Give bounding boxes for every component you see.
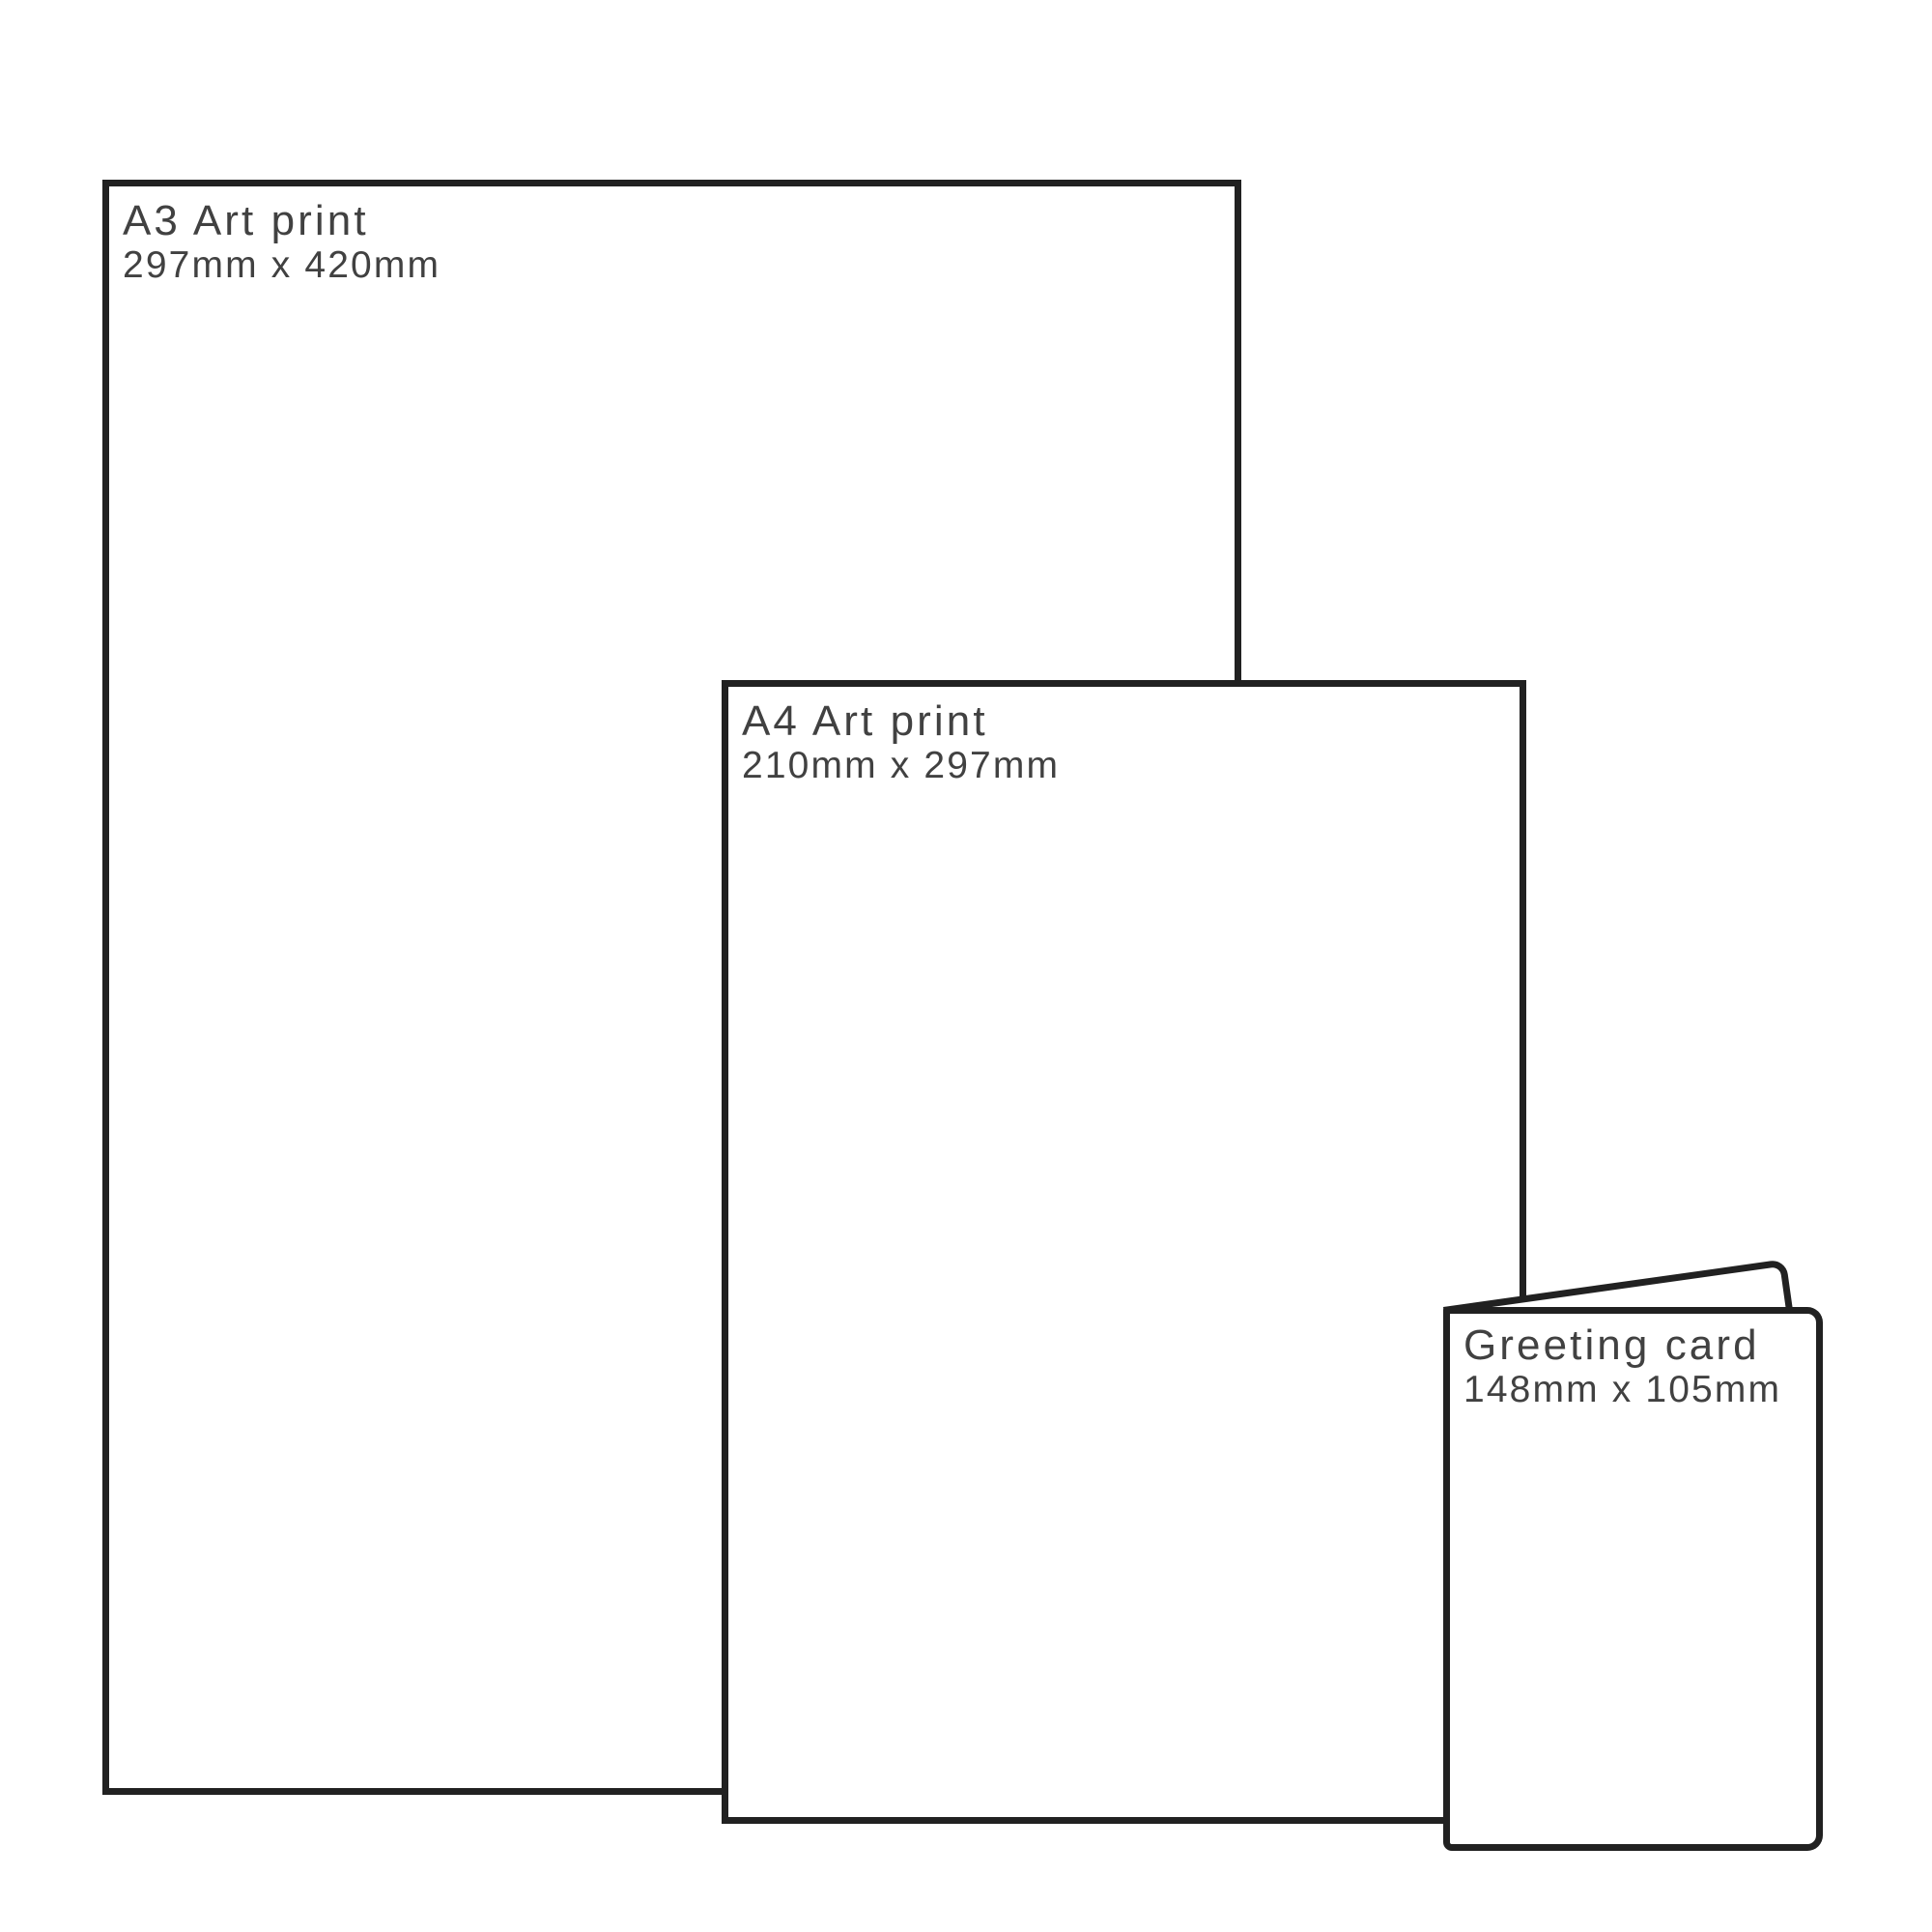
- a4-dimensions: 210mm x 297mm: [742, 745, 1514, 788]
- a3-dimensions: 297mm x 420mm: [123, 244, 1229, 288]
- print-size-comparison-diagram: A3 Art print 297mm x 420mm A4 Art print …: [0, 0, 1932, 1932]
- greeting-card-dimensions: 148mm x 105mm: [1463, 1369, 1810, 1412]
- a4-art-print-outline: A4 Art print 210mm x 297mm: [722, 680, 1526, 1824]
- a3-title: A3 Art print: [123, 198, 1229, 244]
- a4-title: A4 Art print: [742, 698, 1514, 745]
- greeting-card-outline: Greeting card 148mm x 105mm: [1443, 1307, 1823, 1851]
- greeting-card-label: Greeting card 148mm x 105mm: [1450, 1314, 1816, 1412]
- a3-label: A3 Art print 297mm x 420mm: [109, 186, 1235, 288]
- a4-label: A4 Art print 210mm x 297mm: [728, 687, 1520, 788]
- greeting-card-title: Greeting card: [1463, 1322, 1810, 1369]
